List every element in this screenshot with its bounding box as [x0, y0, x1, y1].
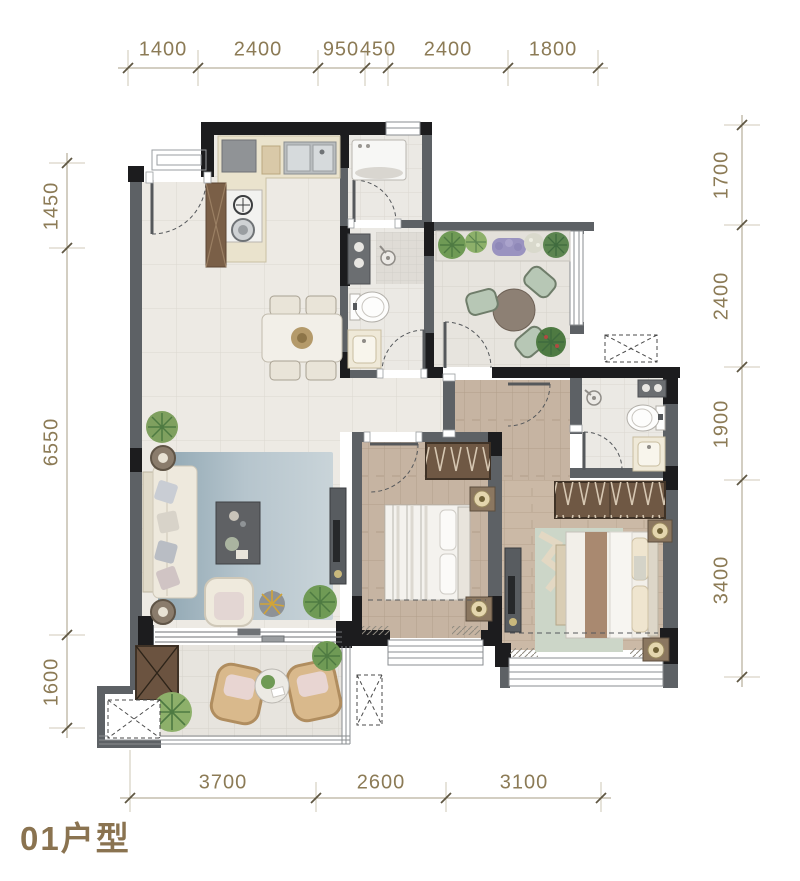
- bed-runner: [585, 532, 607, 638]
- plan-title: 01户型: [20, 812, 131, 860]
- terrace-plant: [536, 327, 566, 357]
- toilet-main: [350, 292, 389, 322]
- vanity-main: [348, 330, 381, 368]
- ac-platform: [605, 335, 657, 362]
- headboard: [648, 532, 658, 636]
- nightstand: [643, 638, 669, 661]
- dim-right-2: 2400: [711, 272, 734, 321]
- ac-cabinet: [136, 646, 178, 700]
- balcony-table: [255, 669, 289, 703]
- ac-platform: [357, 675, 382, 725]
- sofa: [143, 466, 197, 598]
- floor-plan-svg: [0, 0, 800, 881]
- side-table: [151, 446, 175, 470]
- plant: [303, 585, 337, 619]
- dim-top-4: 450: [360, 39, 396, 62]
- plant-stand: [259, 590, 285, 617]
- sliding-door-balcony: [155, 629, 342, 642]
- tall-cabinet: [206, 183, 226, 267]
- floorplan-page: 1400 2400 950 450 2400 1800 3700 2600 31…: [0, 0, 800, 881]
- wardrobe-middle: [426, 443, 490, 479]
- wardrobe-master: [555, 482, 665, 518]
- bed-bench: [556, 545, 566, 625]
- bay-window-master: [509, 658, 663, 686]
- dim-bottom-2: 2600: [357, 772, 406, 795]
- dim-bottom-1: 3700: [199, 772, 248, 795]
- sill-hatch: [362, 626, 390, 635]
- dim-left-1: 1450: [41, 182, 64, 231]
- kitchen-sink: [284, 142, 336, 174]
- window-utility: [386, 122, 420, 135]
- toilet-master: [627, 405, 665, 431]
- window-bedroom-middle: [388, 640, 483, 665]
- sill-hatch: [452, 626, 480, 635]
- dim-top-1: 1400: [139, 39, 188, 62]
- washing-machine: [352, 140, 406, 180]
- dim-top-3: 950: [323, 39, 359, 62]
- counter-master: [638, 380, 666, 397]
- dim-right-3: 1900: [711, 400, 734, 449]
- dim-right-4: 3400: [711, 556, 734, 605]
- laundry-cabinet: [348, 234, 370, 284]
- dining-chair: [270, 296, 300, 315]
- plant: [146, 411, 178, 443]
- dim-left-2: 6550: [41, 418, 64, 467]
- dim-right-1: 1700: [711, 151, 734, 200]
- armchair: [205, 578, 253, 626]
- stove: [224, 190, 262, 242]
- nightstand: [470, 487, 495, 511]
- window-terrace-right: [570, 231, 583, 325]
- nightstand: [466, 597, 492, 621]
- dim-top-5: 2400: [424, 39, 473, 62]
- vanity-master: [633, 437, 665, 471]
- sill-hatch: [510, 648, 538, 657]
- plant: [312, 641, 342, 671]
- nightstand: [648, 520, 672, 542]
- bed-master: [556, 532, 658, 638]
- coffee-table: [216, 502, 260, 564]
- side-table: [151, 600, 175, 624]
- cutting-board: [262, 146, 280, 174]
- dining-chair: [270, 361, 300, 380]
- dim-bottom-3: 3100: [500, 772, 549, 795]
- ac-platform: [108, 700, 160, 738]
- dining-chair: [306, 296, 336, 315]
- dim-left-3: 1600: [41, 658, 64, 707]
- utility-room: [352, 140, 406, 180]
- fridge: [222, 140, 256, 172]
- dim-top-6: 1800: [529, 39, 578, 62]
- dining-chair: [306, 361, 336, 380]
- tv-console: [330, 488, 346, 584]
- dim-top-2: 2400: [234, 39, 283, 62]
- bed-middle: [385, 505, 470, 600]
- entry-step: [152, 150, 206, 170]
- tv-console-master: [505, 548, 521, 632]
